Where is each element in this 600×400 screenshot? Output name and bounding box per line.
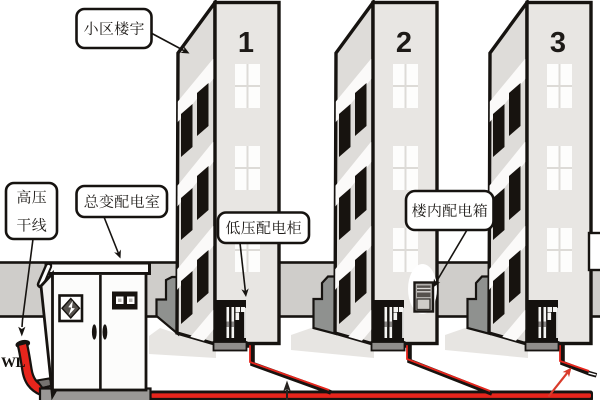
svg-text:2: 2 bbox=[396, 27, 412, 59]
svg-text:3: 3 bbox=[550, 27, 566, 59]
svg-text:WL: WL bbox=[1, 355, 26, 371]
svg-text:1: 1 bbox=[238, 27, 254, 59]
